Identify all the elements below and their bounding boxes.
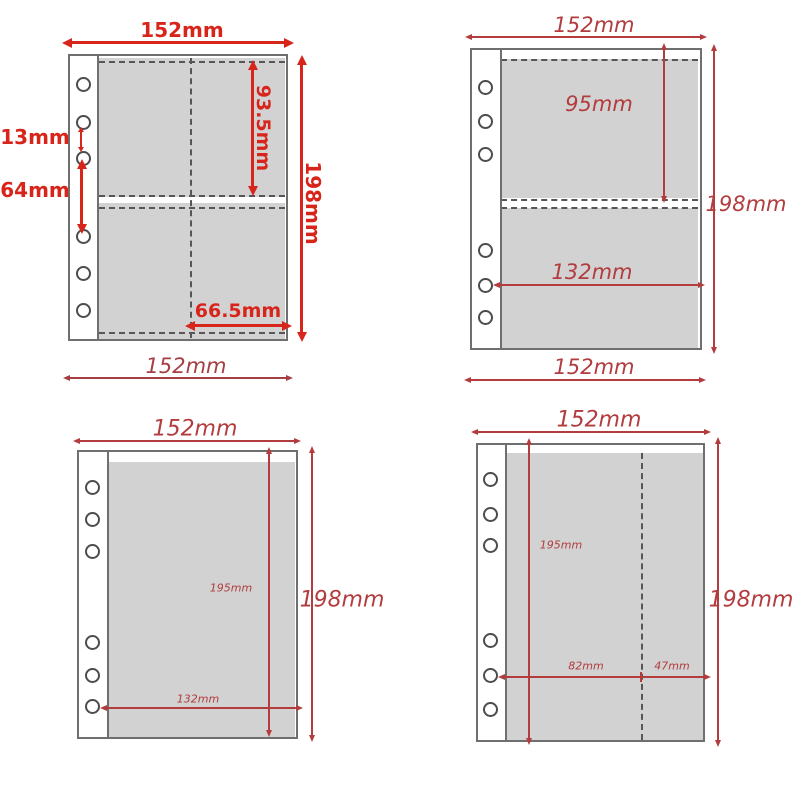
pocket-width-label: 66.5mm [195, 300, 281, 322]
page-height-label: 198mm [300, 588, 385, 613]
top-width-label: 152mm [153, 417, 238, 442]
binder-hole [478, 147, 493, 162]
pocket-top [501, 59, 698, 198]
pocket-height-arrow [268, 454, 270, 730]
page-height-label: 198mm [301, 161, 325, 244]
binder-hole [478, 278, 493, 293]
binder-hole [478, 310, 493, 325]
pocket-widths-arrow [505, 676, 704, 678]
hole-gap-small-arrow [80, 132, 82, 147]
binder-hole [85, 699, 100, 714]
bottom-width-label: 152mm [146, 354, 227, 378]
hole-gap-small-label: 13mm [0, 125, 70, 149]
binder-hole [85, 544, 100, 559]
left-width-label: 82mm [568, 660, 603, 673]
binder-hole [483, 472, 498, 487]
dashed-seam [501, 199, 698, 201]
binder-hole [85, 512, 100, 527]
dashed-split-seam [641, 453, 643, 740]
binder-hole [76, 303, 91, 318]
right-width-label: 47mm [654, 660, 689, 673]
pocket-height-label: 195mm [540, 539, 582, 552]
dashed-seam [501, 207, 698, 209]
binder-hole [76, 77, 91, 92]
binder-pocket-size-sheet: 152mm 198mm 93.5mm 66.5mm 13mm 64mm 152m… [0, 0, 800, 800]
page-height-label: 198mm [706, 192, 787, 216]
binder-hole [483, 507, 498, 522]
bottom-width-arrow [471, 379, 699, 381]
binder-hole [85, 668, 100, 683]
page-height-label: 198mm [709, 588, 794, 613]
binder-hole [478, 80, 493, 95]
binding-strip-divider [97, 56, 99, 339]
pocket-width-label: 132mm [177, 693, 219, 706]
pocket-width-arrow [500, 284, 698, 286]
binder-hole [483, 538, 498, 553]
binder-hole [483, 668, 498, 683]
binder-hole [483, 702, 498, 717]
pocket-width-arrow [107, 707, 296, 709]
top-width-label: 152mm [554, 13, 635, 37]
dashed-seam [99, 332, 285, 334]
pocket-width-label: 132mm [552, 260, 633, 284]
pocket-height-label: 95mm [565, 92, 633, 116]
dashed-seam [501, 59, 698, 61]
pocket-height-label: 93.5mm [252, 85, 274, 171]
binding-strip-divider [107, 452, 109, 737]
pocket-height-label: 195mm [210, 582, 252, 595]
binder-hole [478, 114, 493, 129]
pocket-height-arrow [528, 445, 530, 738]
hole-gap-large-arrow [80, 169, 83, 224]
hole-gap-large-label: 64mm [0, 178, 70, 202]
pocket-height-arrow [663, 50, 665, 196]
binder-hole [483, 633, 498, 648]
dashed-seam [99, 207, 285, 209]
binding-strip-divider [500, 50, 502, 348]
dashed-center-seam [190, 58, 192, 338]
page-outline [476, 443, 705, 742]
binder-hole [85, 635, 100, 650]
bottom-width-label: 152mm [554, 355, 635, 379]
binder-hole [478, 243, 493, 258]
top-width-label: 152mm [140, 18, 223, 42]
binder-hole [85, 480, 100, 495]
pocket [506, 453, 703, 740]
pocket-width-arrow [195, 324, 282, 327]
divider-tick [640, 672, 642, 682]
binder-hole [76, 266, 91, 281]
binding-strip-divider [505, 445, 507, 740]
top-width-label: 152mm [557, 408, 642, 433]
